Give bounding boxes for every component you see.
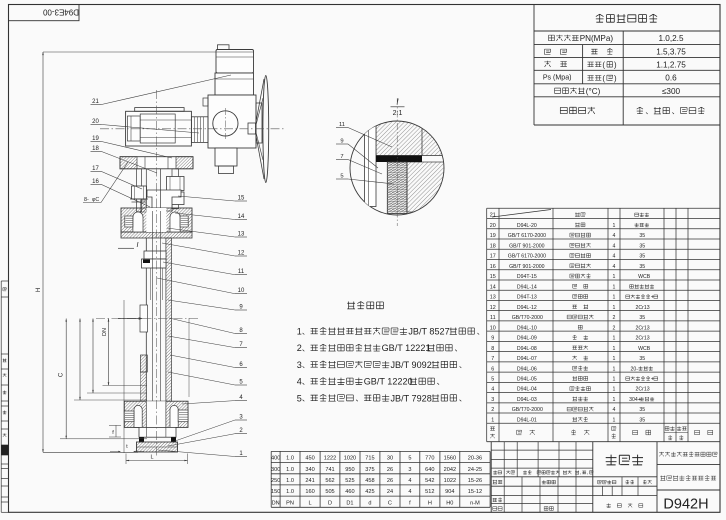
svg-text:19: 19	[92, 136, 99, 142]
svg-text:715: 715	[365, 456, 374, 462]
svg-text:4: 4	[297, 377, 302, 387]
svg-text:11: 11	[238, 269, 245, 275]
svg-text:35: 35	[639, 243, 645, 249]
svg-text:4: 4	[408, 478, 411, 484]
svg-text:D94L-08: D94L-08	[517, 346, 537, 352]
svg-text:WCB: WCB	[638, 346, 651, 352]
svg-text:300: 300	[271, 467, 280, 473]
svg-text:DN: DN	[272, 500, 280, 506]
svg-text:250: 250	[271, 478, 280, 484]
svg-text:26: 26	[387, 467, 393, 473]
svg-text:Ps (Mpa): Ps (Mpa)	[543, 75, 572, 82]
svg-text:12: 12	[238, 251, 245, 257]
svg-text:24-25: 24-25	[468, 467, 482, 473]
svg-text:375: 375	[365, 467, 374, 473]
svg-text:GB/T 901-2000: GB/T 901-2000	[509, 243, 544, 249]
svg-text:D94L-01: D94L-01	[517, 417, 537, 423]
svg-text:JB/T 8527: JB/T 8527	[408, 327, 449, 337]
svg-text:D1: D1	[346, 500, 353, 506]
svg-text:D94L-10: D94L-10	[517, 325, 537, 331]
svg-text:150: 150	[271, 489, 280, 495]
svg-text:17: 17	[490, 254, 496, 260]
svg-text:770: 770	[425, 456, 434, 462]
svg-text:24: 24	[387, 489, 393, 495]
svg-text:1: 1	[613, 377, 616, 383]
svg-text:241: 241	[305, 478, 314, 484]
svg-text:35: 35	[639, 356, 645, 362]
svg-text:340: 340	[305, 467, 314, 473]
svg-text:D94E3-00: D94E3-00	[42, 7, 79, 16]
svg-text:D94L-05: D94L-05	[517, 377, 537, 383]
svg-text:26: 26	[387, 478, 393, 484]
svg-text:18: 18	[92, 146, 99, 152]
svg-text:+: +	[651, 295, 654, 301]
svg-text:GB/T70-2000: GB/T70-2000	[512, 407, 543, 413]
svg-text:8: 8	[491, 346, 494, 352]
svg-text:4: 4	[613, 233, 616, 239]
svg-text:D: D	[328, 500, 332, 506]
svg-text:D94L-03: D94L-03	[517, 397, 537, 403]
svg-text:2Cr13: 2Cr13	[636, 387, 650, 393]
svg-text:D94L-14: D94L-14	[517, 284, 537, 290]
svg-text:1: 1	[491, 417, 494, 423]
svg-text:1: 1	[613, 417, 616, 423]
svg-text:≤300: ≤300	[662, 87, 681, 96]
svg-text:C: C	[59, 372, 65, 377]
svg-text:DN: DN	[102, 328, 108, 336]
svg-text:21: 21	[92, 99, 99, 105]
svg-text:304+: 304+	[629, 397, 641, 403]
svg-text:15-12: 15-12	[468, 489, 482, 495]
svg-text:4: 4	[613, 407, 616, 413]
svg-text:2Cr13: 2Cr13	[636, 325, 650, 331]
svg-text:505: 505	[325, 489, 334, 495]
svg-text:5: 5	[340, 174, 343, 180]
svg-text:4: 4	[613, 254, 616, 260]
svg-text:1.5,3.75: 1.5,3.75	[656, 48, 686, 57]
svg-text:16: 16	[490, 264, 496, 270]
svg-text:7: 7	[340, 154, 343, 160]
svg-text:512: 512	[425, 489, 434, 495]
svg-text:35: 35	[639, 407, 645, 413]
svg-text:1: 1	[613, 274, 616, 280]
svg-text:1: 1	[613, 346, 616, 352]
svg-text:21: 21	[490, 213, 496, 219]
svg-text:1: 1	[613, 336, 616, 342]
svg-text:GB/T 6170-2000: GB/T 6170-2000	[508, 254, 546, 260]
svg-text:D94L-12: D94L-12	[517, 305, 537, 311]
svg-text:2Cr13: 2Cr13	[636, 336, 650, 342]
svg-text:35: 35	[639, 264, 645, 270]
svg-text:1.0: 1.0	[286, 456, 294, 462]
svg-text:1: 1	[613, 387, 616, 393]
svg-text:13: 13	[490, 295, 496, 301]
svg-text:2: 2	[297, 343, 302, 353]
svg-text:3: 3	[491, 397, 494, 403]
svg-text:5: 5	[491, 377, 494, 383]
svg-text:JB/T 7928: JB/T 7928	[391, 393, 432, 403]
svg-text:): )	[614, 74, 617, 83]
svg-text:15: 15	[238, 196, 245, 202]
svg-text:(: (	[602, 74, 605, 83]
svg-text:D94L-20: D94L-20	[517, 223, 537, 229]
svg-text:11: 11	[339, 122, 345, 128]
svg-text:460: 460	[345, 489, 354, 495]
svg-text:1020: 1020	[344, 456, 356, 462]
svg-text:5: 5	[297, 393, 302, 403]
svg-text:20: 20	[490, 223, 496, 229]
svg-text:H0: H0	[446, 500, 453, 506]
svg-text:400: 400	[271, 456, 280, 462]
svg-text:D942H: D942H	[663, 497, 708, 513]
svg-text:JB/T 9092: JB/T 9092	[391, 360, 432, 370]
svg-text:I: I	[137, 242, 139, 249]
svg-text:9: 9	[491, 336, 494, 342]
svg-text:15: 15	[490, 274, 496, 280]
svg-text:1: 1	[613, 295, 616, 301]
svg-text:10: 10	[490, 325, 496, 331]
svg-text:1: 1	[613, 223, 616, 229]
svg-text:1222: 1222	[324, 456, 336, 462]
svg-text:950: 950	[345, 467, 354, 473]
svg-text:1.0: 1.0	[286, 478, 294, 484]
svg-text:4: 4	[491, 387, 494, 393]
svg-text:n-M: n-M	[470, 500, 480, 506]
svg-text:D94L-07: D94L-07	[517, 356, 537, 362]
svg-text:7: 7	[491, 356, 494, 362]
svg-text:14: 14	[490, 284, 496, 290]
svg-text:15-26: 15-26	[468, 478, 482, 484]
svg-text:4: 4	[408, 489, 411, 495]
svg-text:18: 18	[490, 243, 496, 249]
svg-text:1.1,2.75: 1.1,2.75	[656, 61, 686, 70]
svg-text:d: d	[368, 500, 371, 506]
svg-text:1: 1	[613, 366, 616, 372]
svg-text:0.6: 0.6	[665, 74, 677, 83]
svg-text:562: 562	[325, 478, 334, 484]
svg-text:1.0: 1.0	[286, 467, 294, 473]
svg-text:D94L-04: D94L-04	[517, 387, 537, 393]
svg-text:1.0: 1.0	[286, 489, 294, 495]
svg-text:1: 1	[297, 327, 302, 337]
svg-text:PN: PN	[286, 500, 294, 506]
svg-text:160: 160	[305, 489, 314, 495]
svg-text:D94L-06: D94L-06	[517, 366, 537, 372]
svg-text:(: (	[602, 60, 605, 69]
svg-text:C: C	[388, 500, 392, 506]
svg-text:1560: 1560	[444, 456, 456, 462]
svg-text:(°C): (°C)	[586, 87, 601, 96]
svg-text:1: 1	[613, 305, 616, 311]
svg-text:PN(MPa): PN(MPa)	[580, 34, 614, 43]
svg-text:H: H	[36, 288, 42, 292]
svg-text:1.0,2.5: 1.0,2.5	[658, 34, 683, 43]
svg-text:14: 14	[238, 214, 245, 220]
svg-text:640: 640	[425, 467, 434, 473]
svg-text:,: ,	[587, 471, 588, 476]
svg-text:): )	[614, 60, 617, 69]
svg-text:19: 19	[490, 233, 496, 239]
svg-text:2: 2	[613, 315, 616, 321]
svg-text:17: 17	[92, 166, 99, 172]
svg-text:L: L	[308, 500, 311, 506]
svg-text:1022: 1022	[444, 478, 456, 484]
svg-text:9: 9	[340, 139, 343, 145]
svg-text:WCB: WCB	[638, 274, 651, 280]
svg-text:L: L	[150, 455, 153, 461]
svg-text:35: 35	[639, 254, 645, 260]
svg-text:D94L-09: D94L-09	[517, 336, 537, 342]
svg-text:16: 16	[92, 179, 99, 185]
svg-text:1: 1	[613, 284, 616, 290]
svg-text:H: H	[428, 500, 432, 506]
svg-text:35: 35	[639, 233, 645, 239]
svg-text:458: 458	[365, 478, 374, 484]
svg-text:1: 1	[613, 356, 616, 362]
svg-text:GB/T 12221: GB/T 12221	[382, 343, 431, 353]
svg-text:8-: 8-	[84, 197, 89, 203]
svg-text:35: 35	[639, 417, 645, 423]
svg-text:1: 1	[613, 397, 616, 403]
svg-text:11: 11	[490, 315, 496, 321]
svg-text:20: 20	[92, 119, 99, 125]
svg-text:D94T-13: D94T-13	[517, 295, 537, 301]
svg-text:2: 2	[613, 325, 616, 331]
svg-text:4: 4	[613, 264, 616, 270]
svg-text:6: 6	[491, 366, 494, 372]
svg-text:3: 3	[297, 360, 302, 370]
svg-text:20-: 20-	[630, 366, 638, 372]
svg-text:GB/T 6170-2000: GB/T 6170-2000	[508, 233, 546, 239]
svg-text:2042: 2042	[444, 467, 456, 473]
svg-text:20-36: 20-36	[468, 456, 482, 462]
svg-text:904: 904	[445, 489, 454, 495]
svg-text:D94T-15: D94T-15	[517, 274, 537, 280]
svg-text:450: 450	[305, 456, 314, 462]
svg-text:φC: φC	[92, 197, 99, 203]
svg-text:10: 10	[238, 288, 245, 294]
svg-text:2:1: 2:1	[393, 110, 403, 117]
svg-text:2: 2	[491, 407, 494, 413]
svg-text:30: 30	[387, 456, 393, 462]
svg-text:3: 3	[408, 467, 411, 473]
svg-text:GB/T 12220: GB/T 12220	[364, 377, 413, 387]
svg-text:,: ,	[580, 471, 581, 476]
svg-text:GB/T 901-2000: GB/T 901-2000	[509, 264, 544, 270]
svg-text:13: 13	[238, 232, 245, 238]
svg-text:741: 741	[325, 467, 334, 473]
svg-text:35: 35	[639, 315, 645, 321]
svg-text:GB/T70-2000: GB/T70-2000	[512, 315, 543, 321]
svg-text:5: 5	[408, 456, 411, 462]
svg-text:542: 542	[425, 478, 434, 484]
svg-text:4: 4	[613, 243, 616, 249]
svg-text:425: 425	[365, 489, 374, 495]
svg-text:525: 525	[345, 478, 354, 484]
svg-text:12: 12	[490, 305, 496, 311]
svg-text:+: +	[651, 377, 654, 383]
svg-text:2Cr13: 2Cr13	[636, 305, 650, 311]
